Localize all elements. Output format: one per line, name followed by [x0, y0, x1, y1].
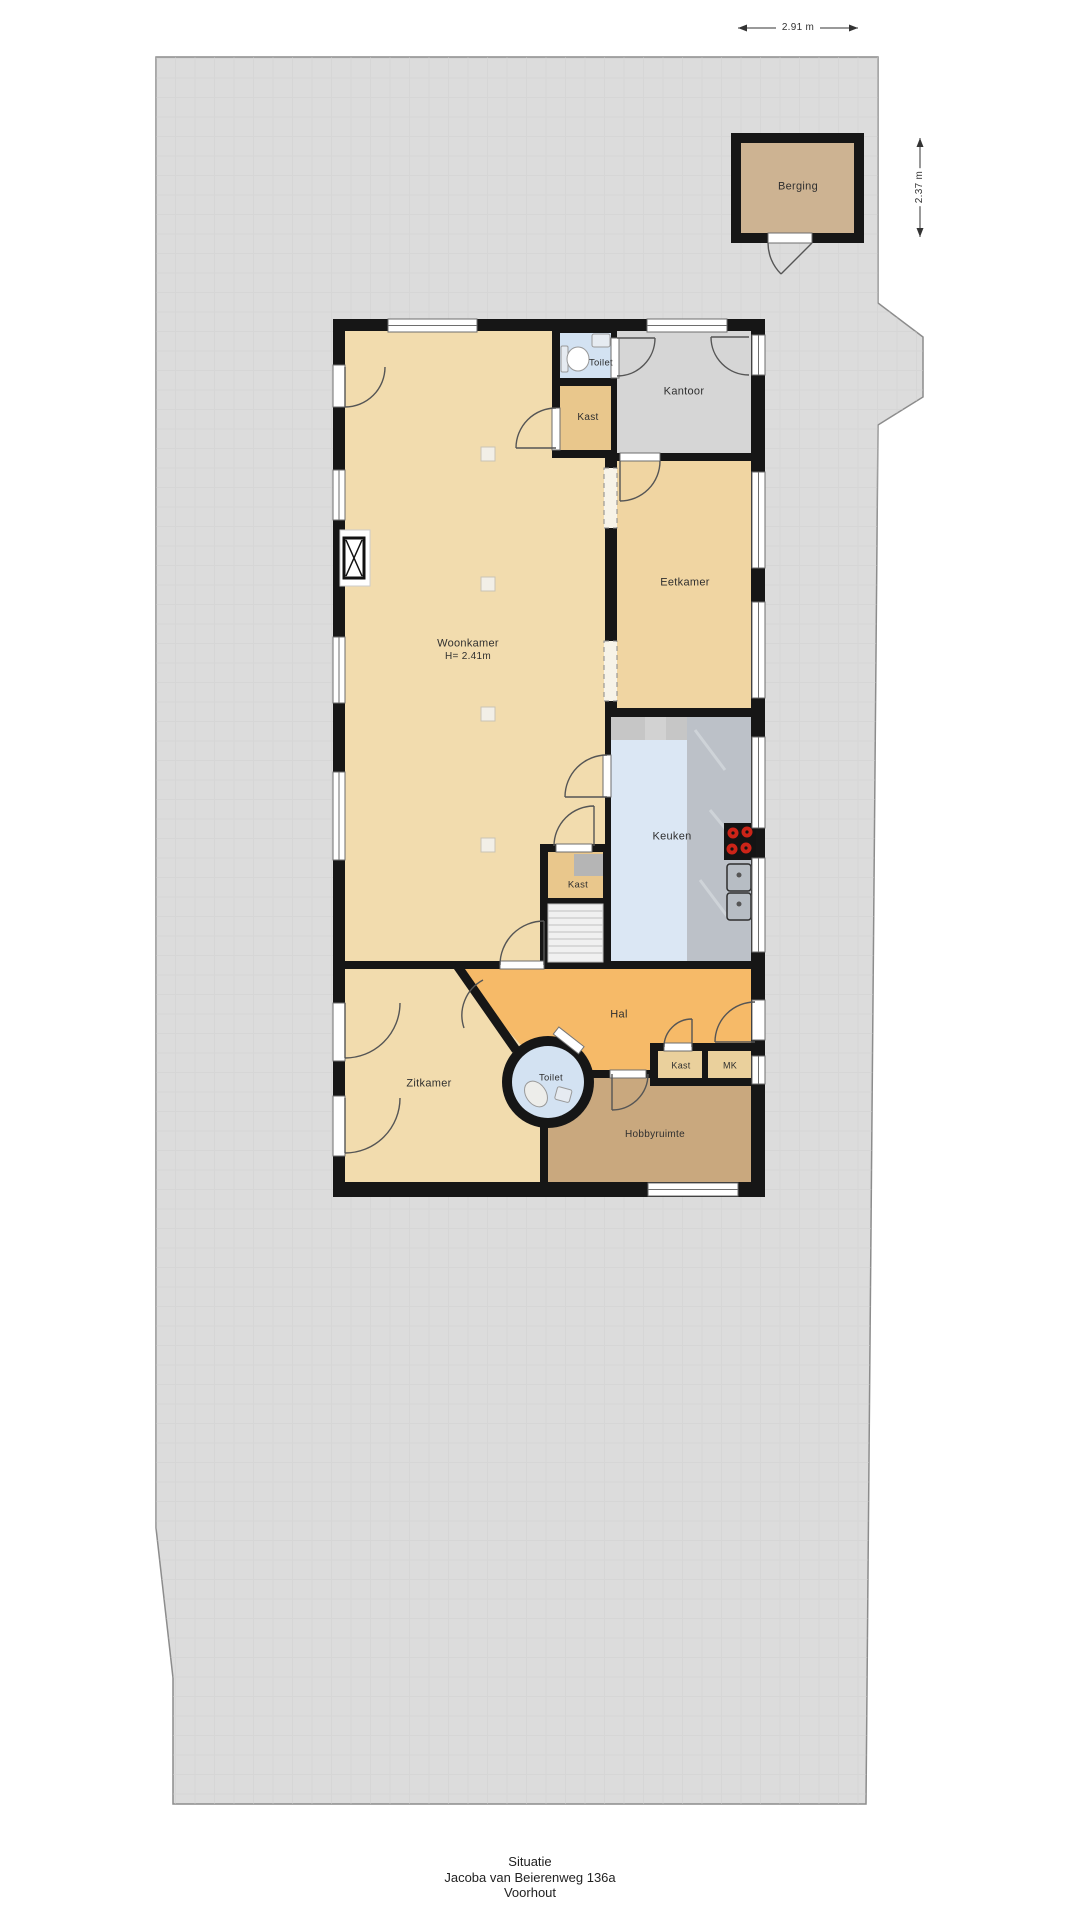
dimension-width-label: 2.91 m — [780, 23, 816, 33]
column — [481, 577, 495, 591]
room-label-woonkamer: Woonkamer — [437, 639, 499, 650]
door-opening — [552, 408, 560, 450]
room-label-hobbyruimte: Hobbyruimte — [625, 1130, 685, 1140]
room-label-toilet-top: Toilet — [589, 358, 613, 368]
caption-address: Jacoba van Beierenweg 136a — [444, 1870, 615, 1886]
door-opening — [500, 961, 544, 969]
cabinet-fixture — [574, 854, 603, 876]
room-label-kast-mid: Kast — [568, 880, 588, 890]
caption-city: Voorhout — [444, 1885, 615, 1901]
room-label-kast-top: Kast — [577, 413, 598, 423]
sink-fixture — [592, 334, 610, 347]
kitchen-counter — [645, 717, 666, 740]
room-label-keuken: Keuken — [652, 832, 691, 843]
caption-type: Situatie — [444, 1854, 615, 1870]
dimension-height-label: 2.37 m — [915, 168, 925, 206]
door-opening — [620, 453, 660, 461]
column — [481, 707, 495, 721]
door-opening — [556, 844, 592, 852]
room-label-zitkamer: Zitkamer — [406, 1079, 451, 1090]
main-building — [333, 319, 765, 1197]
room-label-kast-bottom: Kast — [671, 1062, 690, 1071]
room-label-eetkamer: Eetkamer — [660, 578, 709, 589]
sliding-opening — [604, 641, 617, 701]
floorplan-page: Berging Toilet Kast Kantoor Eetkamer Woo… — [0, 0, 1080, 1920]
room-label-woonkamer-height: H= 2.41m — [445, 652, 491, 662]
floorplan-drawing — [0, 0, 1080, 1920]
room-label-mk: MK — [723, 1062, 737, 1071]
stairs — [548, 904, 603, 962]
room-label-hal: Hal — [610, 1010, 627, 1021]
door-opening — [333, 1003, 345, 1061]
column — [481, 838, 495, 852]
room-label-kantoor: Kantoor — [664, 387, 705, 398]
stove-icon — [724, 823, 756, 860]
door-opening — [752, 1000, 765, 1040]
berging-door-opening — [768, 233, 812, 243]
door-opening — [333, 1096, 345, 1156]
chimney-icon — [340, 530, 370, 586]
toilet-bowl-fixture — [567, 347, 589, 371]
plan-caption: Situatie Jacoba van Beierenweg 136a Voor… — [444, 1854, 615, 1901]
door-opening — [333, 365, 345, 407]
door-opening — [664, 1043, 692, 1051]
room-label-toilet-round: Toilet — [539, 1073, 563, 1083]
sliding-opening — [604, 468, 617, 528]
door-opening — [603, 755, 611, 797]
door-opening — [610, 1070, 646, 1078]
room-label-berging: Berging — [778, 182, 818, 193]
column — [481, 447, 495, 461]
